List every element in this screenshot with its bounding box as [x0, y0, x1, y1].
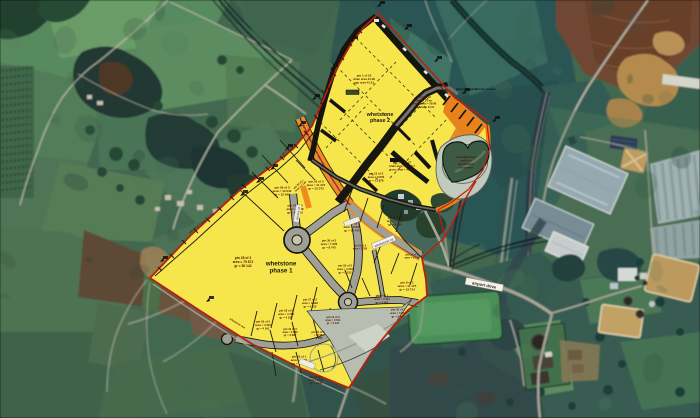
svg-text:gr = 11 678: gr = 11 678 — [369, 178, 384, 182]
svg-text:phase 1: phase 1 — [269, 268, 293, 275]
svg-text:gr = 5 420: gr = 5 420 — [392, 314, 405, 318]
svg-text:gr = 12 049: gr = 12 049 — [274, 193, 290, 197]
svg-text:stormwater: stormwater — [459, 166, 473, 170]
svg-text:gr = 4 313: gr = 4 313 — [304, 304, 317, 308]
svg-text:app area = 41.01: app area = 41.01 — [414, 105, 435, 109]
svg-text:app area 41.01: app area 41.01 — [354, 80, 374, 84]
svg-text:gr = 3 431: gr = 3 431 — [327, 321, 340, 325]
svg-text:gr = 4 546: gr = 4 546 — [310, 381, 323, 385]
svg-text:gr = 8 742: gr = 8 742 — [322, 245, 336, 249]
svg-text:gr = 15 372: gr = 15 372 — [308, 187, 324, 191]
svg-text:development: development — [458, 162, 474, 166]
svg-text:and/or in: and/or in — [461, 159, 472, 163]
svg-text:gr = 4 313: gr = 4 313 — [280, 315, 293, 319]
svg-text:gr = 11 472: gr = 11 472 — [344, 229, 360, 233]
svg-text:plant and quickthorns carriers: plant and quickthorns carriers — [456, 87, 497, 91]
svg-text:gr = 5 313: gr = 5 313 — [339, 270, 352, 274]
svg-text:= 2 965: = 2 965 — [314, 336, 323, 340]
svg-text:gr = 4 341: gr = 4 341 — [257, 326, 270, 330]
svg-text:gr = 9 190: gr = 9 190 — [388, 222, 402, 226]
svg-text:gross area = 41.2 m: gross area = 41.2 m — [389, 167, 416, 171]
svg-text:gr = 13 714: gr = 13 714 — [399, 288, 415, 292]
svg-text:area = 3 748: area = 3 748 — [405, 256, 420, 260]
svg-text:whetstone: whetstone — [366, 112, 394, 118]
svg-text:phase 2: phase 2 — [370, 118, 390, 124]
svg-text:attenuation dam: attenuation dam — [456, 155, 477, 159]
svg-text:whetstone: whetstone — [265, 261, 297, 268]
svg-text:gr = 3 966: gr = 3 966 — [284, 333, 297, 337]
svg-text:area = 2 326: area = 2 326 — [353, 248, 368, 251]
svg-text:gr = 56 142: gr = 56 142 — [234, 264, 251, 268]
svg-text:gr = 4 561: gr = 4 561 — [376, 300, 389, 304]
